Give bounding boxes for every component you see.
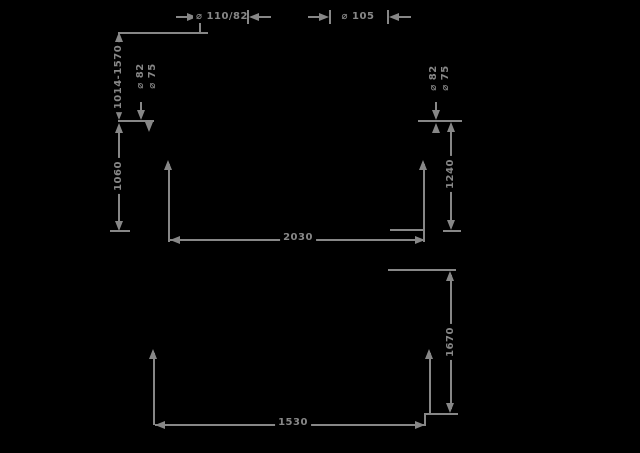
pipe-callout-left-line1: ⌀ 82 bbox=[135, 63, 147, 88]
extension-tick bbox=[443, 230, 461, 232]
extension-tick bbox=[110, 230, 130, 232]
dimension-value-2030: 2030 bbox=[280, 231, 316, 245]
pipe-callout-right-line2: ⌀ 75 bbox=[440, 65, 452, 90]
dimension-value-1530: 1530 bbox=[275, 416, 311, 430]
dimension-value-1240: 1240 bbox=[444, 156, 458, 192]
arrow-right-icon bbox=[415, 421, 425, 429]
pipe-callout-right: ⌀ 82 ⌀ 75 bbox=[427, 62, 453, 93]
pipe-callout-left: ⌀ 82 ⌀ 75 bbox=[134, 60, 160, 91]
extension-tick bbox=[329, 10, 331, 24]
wall-line-lower-right bbox=[429, 353, 431, 414]
arrow-down-icon bbox=[145, 122, 153, 132]
diameter-label-top-left: ⌀ 110/82 bbox=[193, 10, 251, 24]
pipe-callout-right-line1: ⌀ 82 bbox=[428, 65, 440, 90]
dimension-value-1670: 1670 bbox=[444, 324, 458, 360]
pipe-callout-left-line2: ⌀ 75 bbox=[147, 63, 159, 88]
leader-line bbox=[399, 16, 411, 18]
wall-line-lower-left bbox=[153, 353, 155, 425]
extension-line bbox=[390, 229, 425, 231]
arrow-right-icon bbox=[415, 236, 425, 244]
extension-line bbox=[424, 413, 458, 415]
arrow-left-icon bbox=[249, 13, 259, 21]
arrow-up-icon bbox=[432, 123, 440, 133]
technical-drawing-canvas: ⌀ 110/82 ⌀ 105 1014-1570 1060 ⌀ 82 ⌀ 75 … bbox=[0, 0, 640, 453]
arrow-left-icon bbox=[389, 13, 399, 21]
dimension-value-1060: 1060 bbox=[112, 158, 126, 194]
diameter-label-top-right: ⌀ 105 bbox=[339, 10, 378, 24]
leader-line bbox=[259, 16, 271, 18]
dimension-value-height-range: 1014-1570 bbox=[112, 42, 126, 112]
arrow-down-icon bbox=[446, 403, 454, 413]
arrow-down-icon bbox=[137, 110, 145, 120]
arrow-down-icon bbox=[447, 220, 455, 230]
arrow-down-icon bbox=[432, 110, 440, 120]
reference-level-line bbox=[418, 120, 462, 122]
wall-line-upper-left bbox=[168, 164, 170, 242]
extension-line-top bbox=[118, 32, 208, 34]
arrow-right-icon bbox=[319, 13, 329, 21]
